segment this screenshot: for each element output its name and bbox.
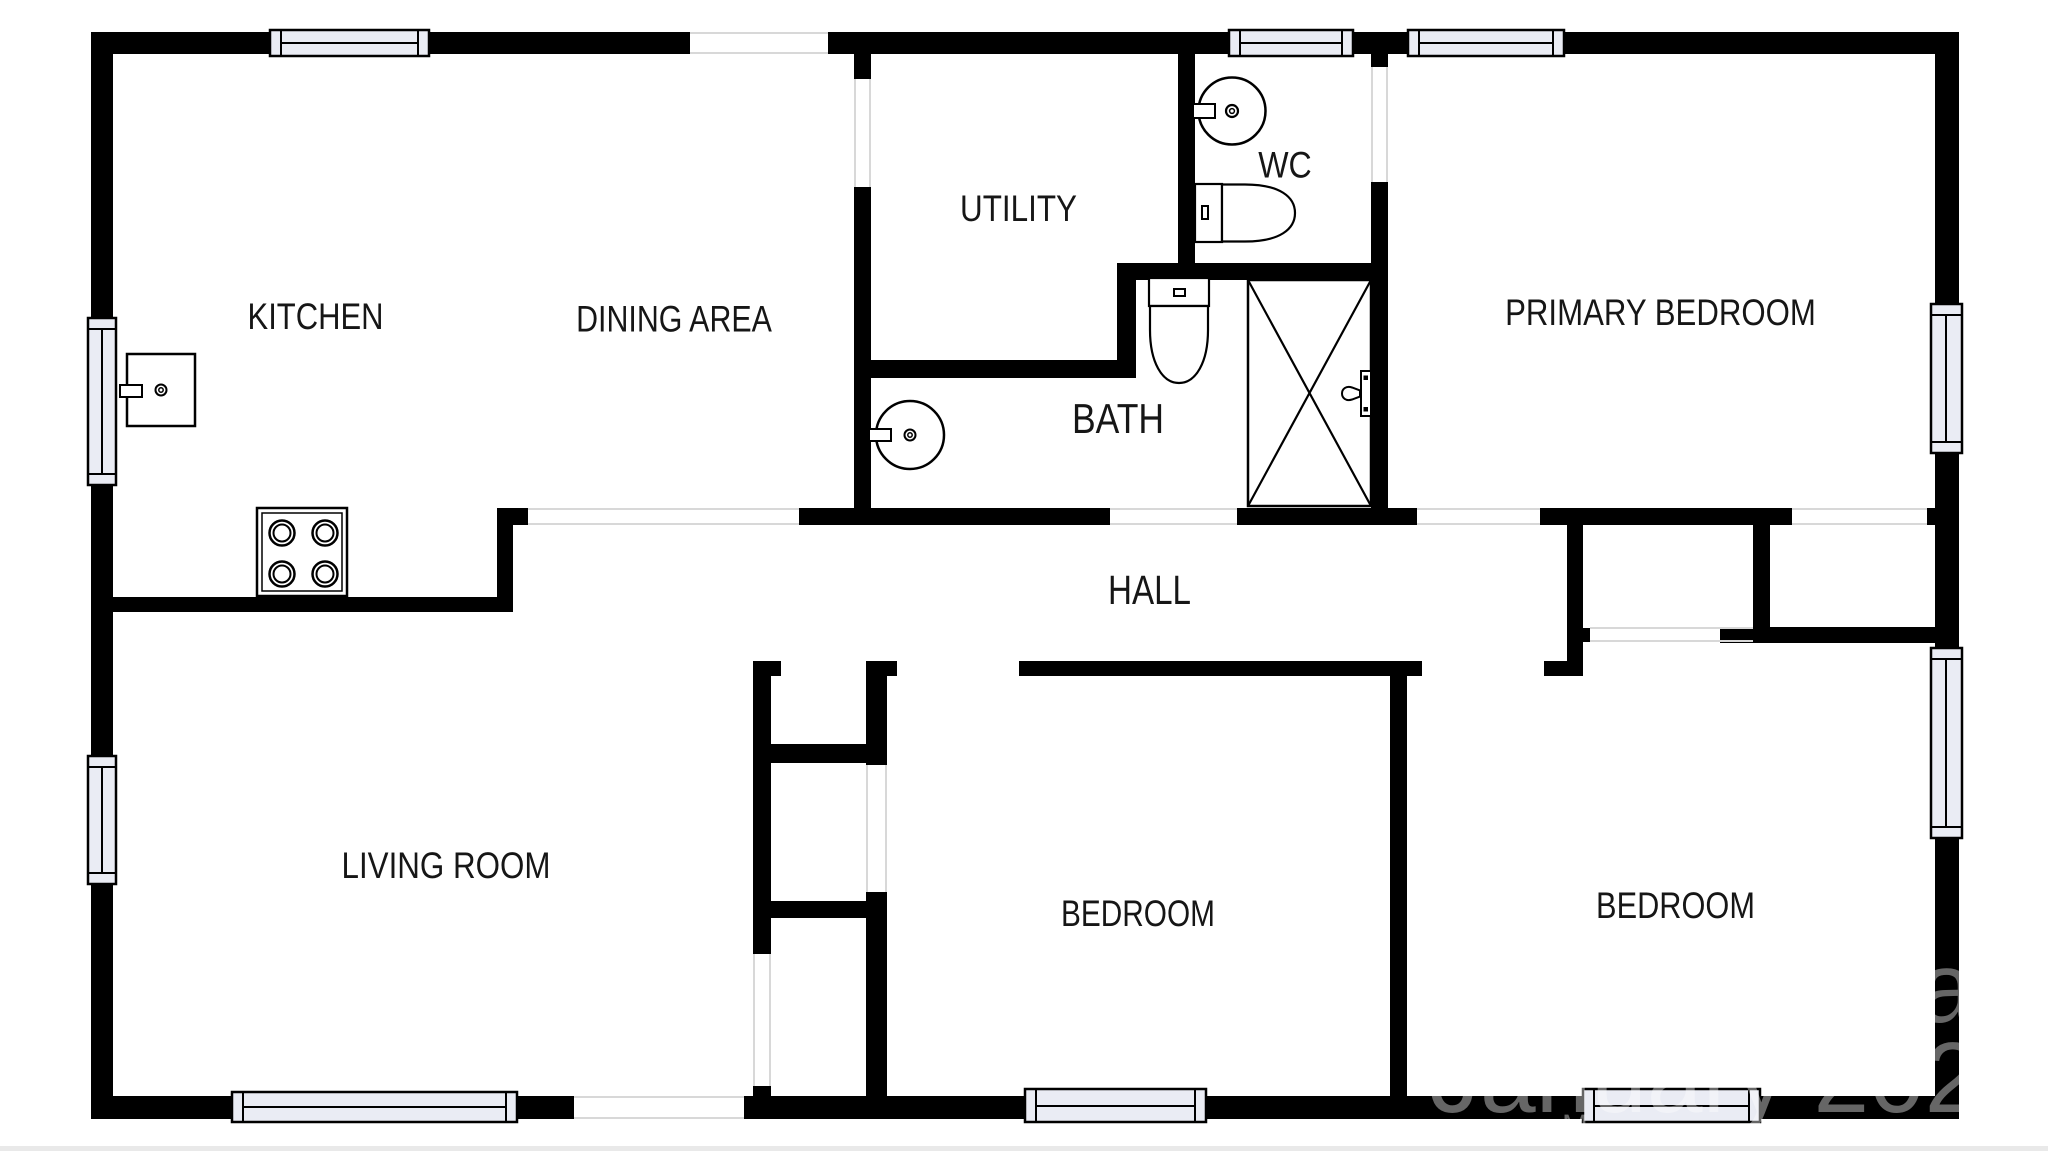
svg-text:BEDROOM: BEDROOM [1596, 885, 1755, 926]
svg-text:KITCHEN: KITCHEN [248, 296, 384, 337]
svg-text:M: M [1562, 1108, 1588, 1143]
svg-text:UTILITY: UTILITY [960, 188, 1077, 229]
svg-text:January 2024: January 2024 [1430, 1022, 2036, 1134]
svg-text:LIVING ROOM: LIVING ROOM [342, 845, 551, 886]
svg-text:HALL: HALL [1108, 567, 1191, 613]
svg-text:BEDROOM: BEDROOM [1061, 893, 1215, 934]
svg-text:WC: WC [1258, 145, 1312, 186]
svg-text:PRIMARY BEDROOM: PRIMARY BEDROOM [1505, 292, 1816, 333]
svg-text:BATH: BATH [1072, 395, 1164, 442]
svg-text:DINING AREA: DINING AREA [576, 299, 772, 340]
